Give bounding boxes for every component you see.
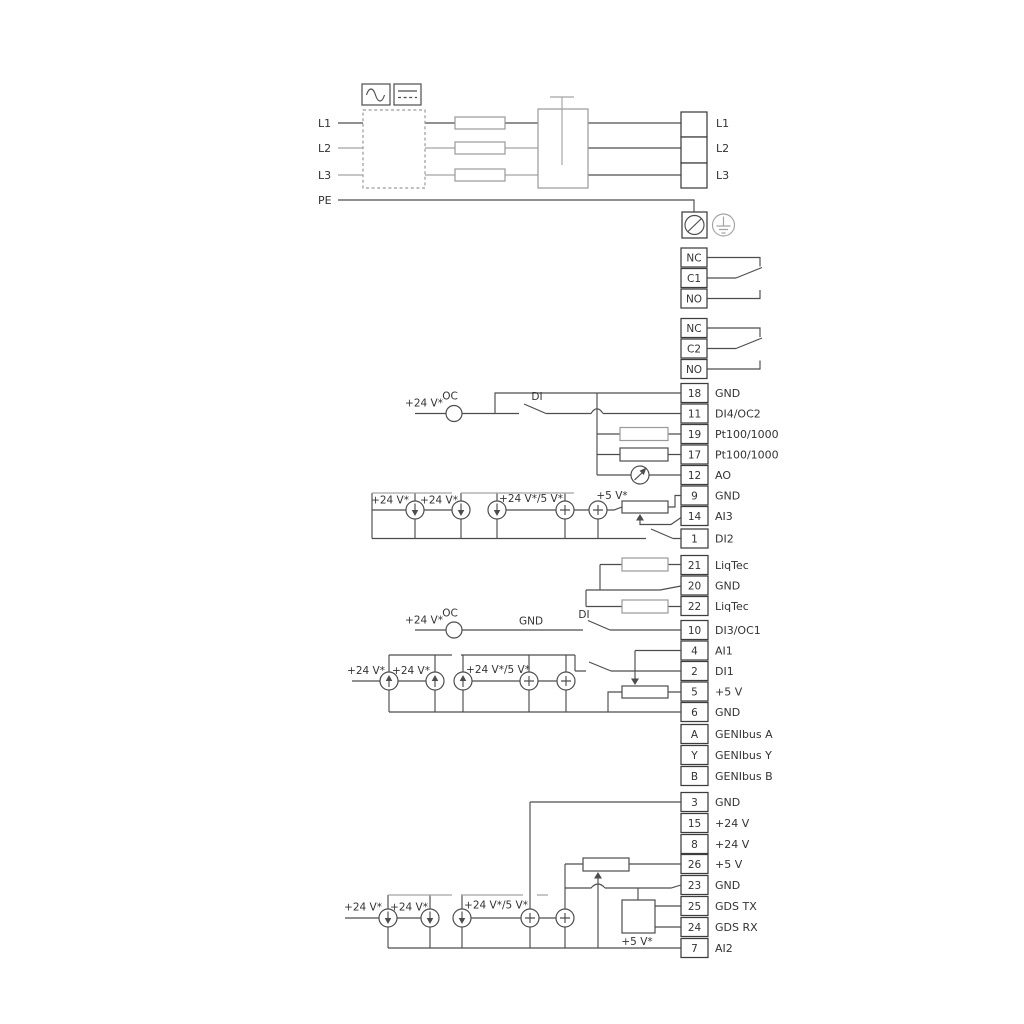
terminal-number: 2 — [691, 666, 698, 678]
wiring-diagram: L1 L2 L3 PE L1 L2 L3 — [0, 0, 1024, 1024]
terminal-strip-1: 18 GND 11 DI4/OC2 19 Pt100/1000 17 Pt100… — [681, 384, 779, 549]
phase-label-pe: PE — [318, 194, 332, 207]
terminal-label: AI3 — [715, 510, 733, 523]
pt100-resistor-icon — [620, 448, 668, 461]
terminal-label: GND — [715, 879, 740, 892]
terminal-label: +24 V — [715, 838, 750, 851]
terminal-number: 11 — [688, 409, 701, 421]
liqtec-sensor-icon — [622, 600, 668, 613]
gds-sensor-box — [622, 900, 655, 933]
annotation-24v: +24 V* — [405, 615, 443, 627]
terminal-label: GND — [715, 706, 740, 719]
source-label: +24 V*/5 V* — [499, 493, 563, 505]
fuse-icon — [455, 169, 505, 181]
annotation-24v: +24 V* — [405, 398, 443, 410]
relay2-section: NC C2 NO — [681, 319, 762, 379]
relay2-nc-label: NC — [686, 323, 701, 335]
terminal-label: GND — [715, 796, 740, 809]
relay1-contact — [707, 258, 762, 299]
relay1-c-label: C1 — [687, 273, 701, 285]
terminal-number: 20 — [688, 581, 701, 593]
relay2-c-label: C2 — [687, 344, 701, 356]
annotation-di: DI — [531, 391, 542, 403]
terminal-label: AO — [715, 469, 731, 482]
annotation-oc: OC — [442, 391, 458, 403]
mains-out-label-l1: L1 — [716, 117, 729, 130]
terminal-number: 19 — [688, 429, 701, 441]
emc-filter-box — [363, 110, 425, 188]
terminal-label: GENIbus B — [715, 770, 773, 783]
source-label: +5 V* — [596, 490, 627, 502]
potentiometer-wiper-arrow — [594, 872, 602, 879]
terminal-number: 4 — [691, 646, 698, 658]
pe-wire — [338, 200, 694, 212]
mains-terminal-cell — [681, 112, 707, 137]
source-label: +24 V* — [392, 665, 430, 677]
terminal-number: 26 — [688, 859, 702, 871]
strip4-wiring: +24 V* +24 V* +24 V*/5 V* +5 V* — [344, 802, 681, 948]
potentiometer-icon — [622, 686, 668, 698]
terminal-label: Pt100/1000 — [715, 428, 779, 441]
terminal-strip-2: 21 LiqTec 20 GND 22 LiqTec — [586, 556, 749, 616]
terminal-number: 8 — [691, 839, 698, 851]
terminal-label: +24 V — [715, 817, 750, 830]
pt100-resistor-icon — [620, 428, 668, 441]
terminal-number: 25 — [688, 901, 701, 913]
liqtec-sensor-icon — [622, 558, 668, 571]
annotation-di: DI — [578, 609, 589, 621]
terminal-label: GDS TX — [715, 900, 757, 913]
terminal-number: 18 — [688, 388, 701, 400]
terminal-label: AI1 — [715, 645, 733, 658]
terminal-strip-4: 3 GND 15 +24 V 8 +24 V 26 +5 V 23 GND 25… — [681, 793, 758, 958]
terminal-label: +5 V — [715, 858, 743, 871]
terminal-label: +5 V — [715, 686, 743, 699]
source-label: +24 V*/5 V* — [466, 664, 530, 676]
terminal-number: 3 — [691, 797, 698, 809]
mains-out-label-l3: L3 — [716, 169, 729, 182]
terminal-number: 24 — [688, 922, 702, 934]
relay1-nc-label: NC — [686, 253, 701, 265]
relay1-no-label: NO — [686, 294, 702, 306]
source-label: +24 V* — [390, 902, 428, 914]
source-label: +24 V*/5 V* — [464, 900, 528, 912]
source-label: +24 V* — [347, 665, 385, 677]
terminal-strip-3: 10 DI3/OC1 4 AI1 2 DI1 5 +5 V 6 GND A GE… — [681, 621, 773, 786]
annotation-gnd: GND — [519, 616, 543, 628]
fuse-icon — [455, 117, 505, 129]
phase-label-l3: L3 — [318, 169, 331, 182]
terminal-number: 5 — [691, 687, 698, 699]
mains-terminal-cell — [681, 137, 707, 163]
terminal-label: GDS RX — [715, 921, 758, 934]
mains-out-label-l2: L2 — [716, 142, 729, 155]
terminal-number: 21 — [688, 560, 701, 572]
terminal-label: GENIbus A — [715, 728, 773, 741]
terminal-number: 6 — [691, 707, 698, 719]
terminal-label: GND — [715, 387, 740, 400]
terminal-number: 12 — [688, 470, 701, 482]
terminal-label: DI2 — [715, 533, 734, 546]
source-label: +24 V* — [371, 495, 409, 507]
terminal-number: 7 — [691, 943, 698, 955]
mains-input-section: L1 L2 L3 PE L1 L2 L3 — [318, 84, 729, 212]
gds-supply-label: +5 V* — [621, 936, 652, 948]
strip3-wiring: +24 V* OC GND DI +24 V* +24 V* +24 V*/5 … — [347, 608, 681, 713]
potentiometer-wiper-arrow — [631, 679, 639, 686]
strip1-wiring: +24 V* OC DI +24 V* +24 V* +24 V*/5 V* +… — [371, 391, 681, 539]
source-label: +24 V* — [420, 495, 458, 507]
terminal-label: LiqTec — [715, 559, 749, 572]
potentiometer-wiper-arrow — [636, 514, 644, 521]
pe-terminal-section — [682, 212, 735, 238]
terminal-number: 22 — [688, 601, 701, 613]
open-collector-icon — [446, 406, 462, 422]
phase-label-l1: L1 — [318, 117, 331, 130]
dc-symbol-box — [394, 84, 421, 105]
terminal-label: Pt100/1000 — [715, 449, 779, 462]
terminal-number: A — [691, 729, 699, 741]
annotation-oc: OC — [442, 608, 458, 620]
potentiometer-icon — [583, 858, 629, 871]
terminal-number: Y — [690, 750, 698, 762]
terminal-label: GENIbus Y — [715, 749, 772, 762]
terminal-label: DI4/OC2 — [715, 408, 761, 421]
terminal-number: 10 — [688, 625, 701, 637]
fuse-icon — [455, 142, 505, 154]
terminal-number: 17 — [688, 450, 701, 462]
terminal-label: DI3/OC1 — [715, 624, 761, 637]
relay2-contact — [707, 328, 762, 369]
mains-terminal-cell — [681, 163, 707, 188]
relay2-no-label: NO — [686, 364, 702, 376]
potentiometer-icon — [622, 501, 668, 513]
contactor-box — [538, 109, 588, 188]
relay1-section: NC C1 NO — [681, 248, 762, 308]
source-label: +24 V* — [344, 902, 382, 914]
terminal-number: 15 — [688, 818, 701, 830]
wiring-diagram-canvas: L1 L2 L3 PE L1 L2 L3 — [0, 0, 1024, 1024]
terminal-number: 23 — [688, 880, 701, 892]
terminal-number: B — [691, 771, 698, 783]
terminal-label: DI1 — [715, 665, 734, 678]
terminal-number: 1 — [691, 534, 698, 546]
terminal-number: 14 — [688, 511, 702, 523]
phase-label-l2: L2 — [318, 142, 331, 155]
terminal-label: GND — [715, 490, 740, 503]
terminal-label: AI2 — [715, 942, 733, 955]
earth-ground-bars — [717, 217, 731, 234]
terminal-label: LiqTec — [715, 600, 749, 613]
terminal-number: 9 — [691, 491, 698, 503]
open-collector-icon — [446, 622, 462, 638]
terminal-label: GND — [715, 580, 740, 593]
